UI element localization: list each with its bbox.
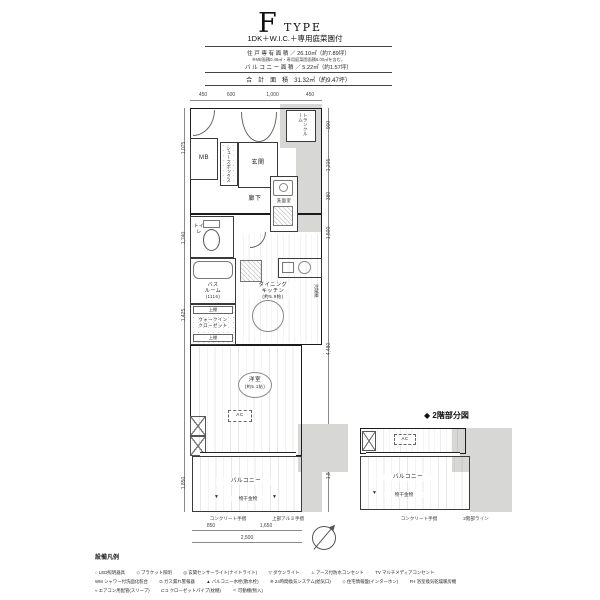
dim-top-3: 1,000 xyxy=(246,92,299,98)
wic-shelf-top: 上棚 xyxy=(193,306,233,314)
dim-top-4: 450 xyxy=(298,92,322,98)
dim-bottom-1: 850 xyxy=(192,523,230,529)
header-rule xyxy=(205,72,392,73)
dining-table xyxy=(252,300,284,332)
bedroom-label: 洋室 xyxy=(238,377,272,384)
balcony-label: バルコニー xyxy=(216,478,276,485)
laundry-mark-left: ▼ xyxy=(214,494,219,500)
sf-exterior-mass-bottom xyxy=(470,472,512,512)
main-note-concrete: コンクリート手摺 xyxy=(200,516,256,521)
trunk-room-label: トランクルーム xyxy=(298,113,307,140)
dim-right-3: 380 xyxy=(326,184,332,208)
dim-line-top xyxy=(190,100,322,101)
area-total: 合 計 面 積 31.32㎡（約9.47坪） xyxy=(205,75,392,84)
dim-left-4: 1,850 xyxy=(181,471,187,495)
laundry-mark-right: ▼ xyxy=(272,494,277,500)
bathtub xyxy=(193,261,233,279)
exterior-mass-lower-right xyxy=(298,424,348,472)
dim-top-2: 600 xyxy=(215,92,247,98)
dim-right-5: 4,480 xyxy=(326,337,332,361)
laundry-hardware-label: 物干金物 xyxy=(228,496,268,501)
dim-right-1: 900 xyxy=(326,113,332,137)
dim-right-4: 1,500 xyxy=(326,221,332,245)
dim-bottom-2: 1,650 xyxy=(230,523,302,529)
hall-label: 廊下 xyxy=(240,196,270,203)
sf-utility-box xyxy=(362,431,376,451)
wic-shelf-bottom: 上棚 xyxy=(193,334,233,342)
powder-label: 洗面室 xyxy=(268,198,300,203)
bedroom-size-label: (約5.1帖) xyxy=(236,384,274,389)
sf-balcony xyxy=(360,456,470,510)
legend-title: 設備凡例 xyxy=(95,552,119,561)
washbasin-bowl xyxy=(279,183,288,192)
dim-left-3: 1,425 xyxy=(181,303,187,327)
legend-item: ＝ 可動棚(物入) xyxy=(232,588,263,594)
ac-label-second-floor: AC xyxy=(394,436,416,441)
sf-laundry-mark: ▼ xyxy=(372,490,377,496)
dim-left-1: 1,075 xyxy=(181,136,187,160)
plan-subtitle: 1DK＋W.I.C.＋専用庭菜園付 xyxy=(200,33,390,44)
utility-box-1 xyxy=(190,416,206,436)
room-bedroom-floor xyxy=(192,347,300,452)
meter-box-label: MB xyxy=(190,155,218,162)
sf-balcony-label: バルコニー xyxy=(378,474,438,481)
dim-left-2: 1,740 xyxy=(181,226,187,250)
dim-line-bottom-total xyxy=(192,542,302,543)
main-note-handrail: 上部アルミ手摺 xyxy=(262,516,314,521)
sf-note-line: 2階部ライン xyxy=(452,516,500,521)
wic-label-1: ウォークイン xyxy=(189,317,237,322)
area-line-2: バ ル コ ニ ー 面 積 ／ 5.22㎡（約1.57坪） xyxy=(205,63,392,71)
area-line-1: 住 戸 専 有 面 積 ／ 26.10㎡（約7.89坪） xyxy=(205,49,392,57)
sf-note-concrete: コンクリート手摺 xyxy=(390,516,448,521)
dim-bottom-total: 2,500 xyxy=(192,535,302,541)
sf-laundry-label: 物干金物 xyxy=(384,492,424,497)
second-floor-title: ◆ 2階部分図 xyxy=(424,410,469,421)
header-rule xyxy=(205,85,392,86)
wic-label-2: クローゼット xyxy=(189,323,237,328)
dim-top-1: 450 xyxy=(190,92,216,98)
toilet-label: トイレ xyxy=(192,224,206,236)
washer-pan xyxy=(273,206,293,226)
dk-size-label: (約5.9帖) xyxy=(248,294,298,299)
shoe-box-label: シューズボックス xyxy=(226,146,231,184)
exterior-mass-balcony-right xyxy=(302,472,322,512)
header-rule xyxy=(205,46,392,47)
bath-size-label: (1116) xyxy=(190,294,236,299)
legend-item: ⊏⊐ クローゼットパイプ(枕棚) xyxy=(161,588,221,594)
floorplan-page: F TYPE 1DK＋W.I.C.＋専用庭菜園付 住 戸 専 有 面 積 ／ 2… xyxy=(0,0,600,600)
genkan-label: 玄関 xyxy=(238,160,278,167)
ac-label-main: AC xyxy=(228,412,252,418)
legend-row-3: ≈ エアコン用配管(スリーブ) ⊏⊐ クローゼットパイプ(枕棚) ＝ 可動棚(物… xyxy=(95,579,505,597)
legend-item: ≈ エアコン用配管(スリーブ) xyxy=(95,588,150,594)
dim-right-2: 1,215 xyxy=(326,153,332,177)
dim-line-bottom xyxy=(192,530,302,531)
